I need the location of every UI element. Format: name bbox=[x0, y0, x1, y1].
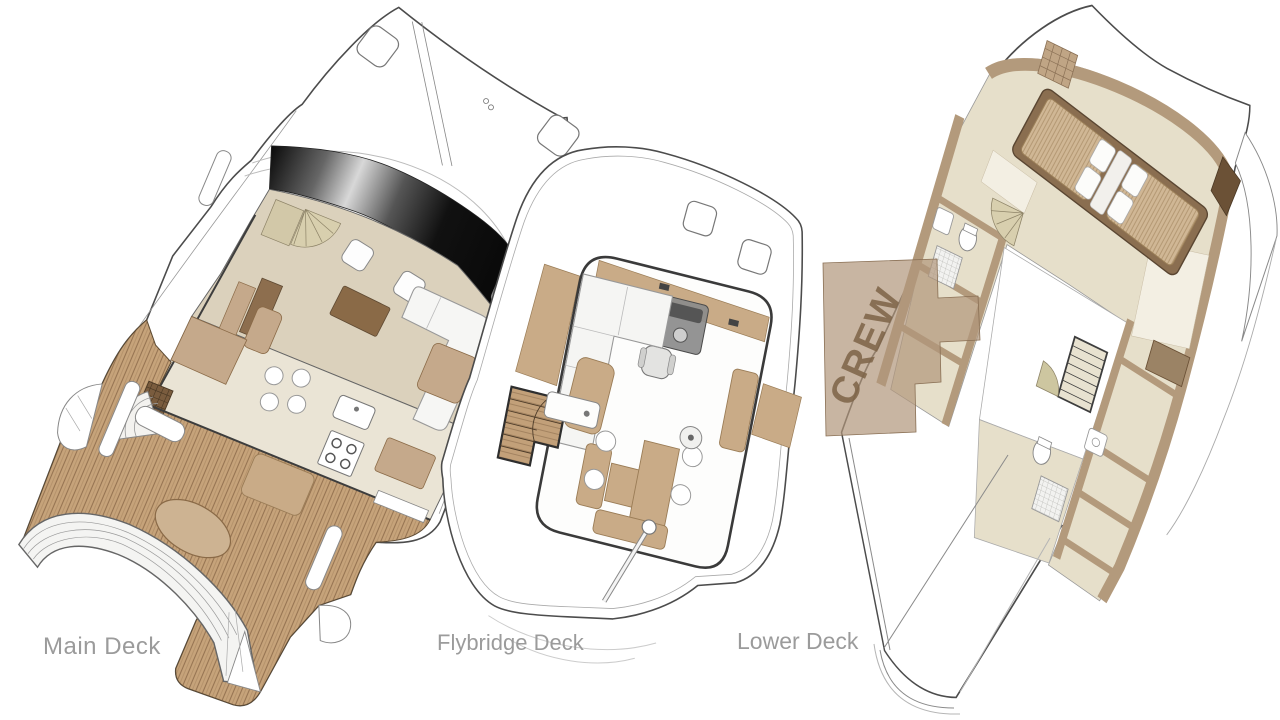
svg-text:Flybridge Deck: Flybridge Deck bbox=[437, 630, 585, 655]
svg-text:Main Deck: Main Deck bbox=[43, 633, 161, 660]
svg-text:Lower Deck: Lower Deck bbox=[737, 628, 859, 654]
